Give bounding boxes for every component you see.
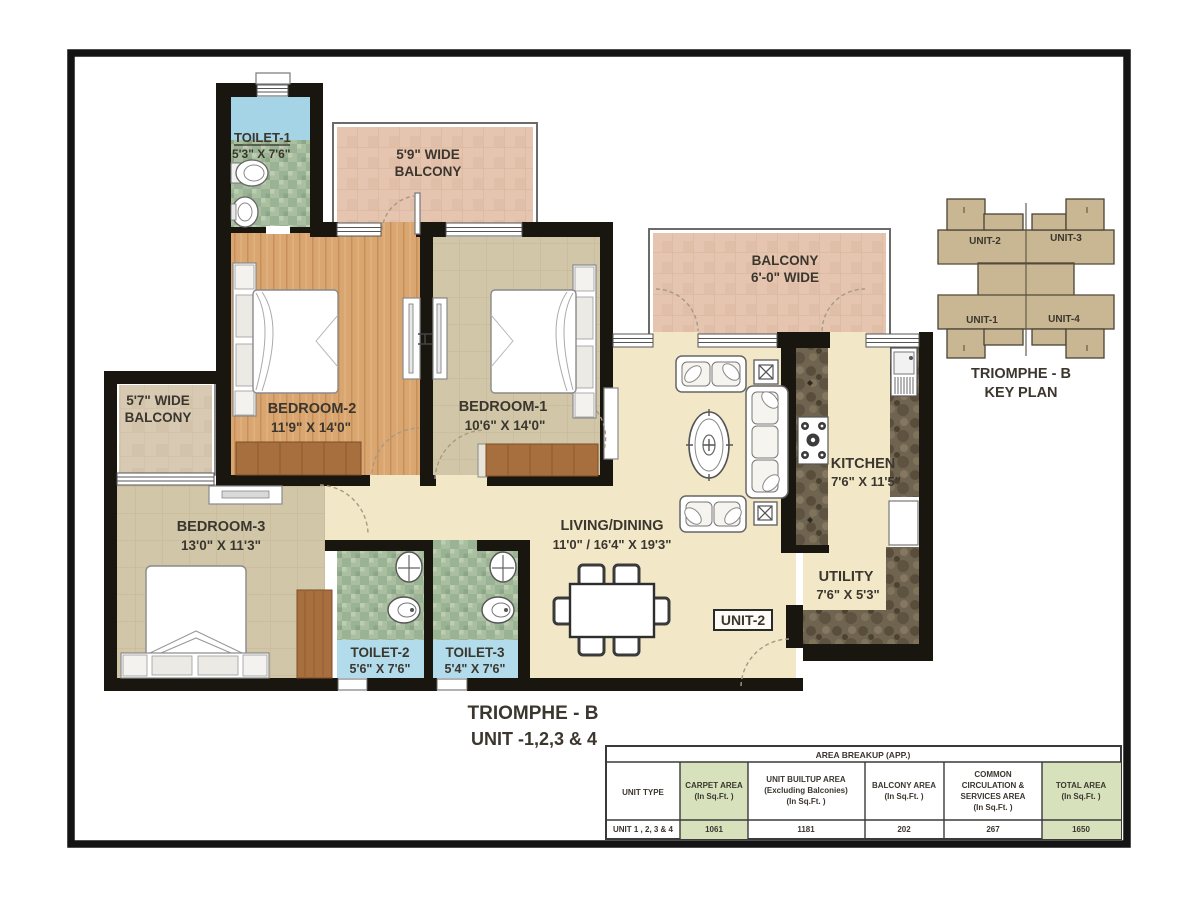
svg-text:UNIT-4: UNIT-4: [1048, 314, 1080, 325]
svg-text:UNIT 1 , 2, 3 & 4: UNIT 1 , 2, 3 & 4: [613, 825, 674, 834]
svg-text:(Excluding Balconies): (Excluding Balconies): [764, 786, 848, 795]
svg-text:5'3" X 7'6": 5'3" X 7'6": [232, 147, 290, 161]
svg-text:AREA BREAKUP (APP.): AREA BREAKUP (APP.): [816, 750, 911, 760]
svg-text:1650: 1650: [1072, 825, 1090, 834]
svg-text:TOILET-1: TOILET-1: [234, 130, 291, 145]
svg-text:UNIT BUILTUP AREA: UNIT BUILTUP AREA: [766, 775, 846, 784]
svg-text:5'4" X 7'6": 5'4" X 7'6": [445, 662, 506, 676]
svg-text:(In Sq.Ft. ): (In Sq.Ft. ): [1061, 792, 1100, 801]
svg-text:UNIT-2: UNIT-2: [969, 236, 1001, 247]
svg-text:UNIT-2: UNIT-2: [721, 612, 766, 628]
svg-text:1181: 1181: [797, 825, 815, 834]
svg-text:TOTAL AREA: TOTAL AREA: [1056, 781, 1107, 790]
svg-text:TRIOMPHE - B: TRIOMPHE - B: [468, 703, 599, 724]
svg-text:BALCONY: BALCONY: [395, 164, 462, 179]
svg-text:UNIT -1,2,3 & 4: UNIT -1,2,3 & 4: [471, 729, 597, 749]
svg-text:TOILET-3: TOILET-3: [445, 645, 505, 660]
svg-text:11'0" / 16'4" X 19'3": 11'0" / 16'4" X 19'3": [553, 537, 672, 552]
svg-text:(In Sq.Ft. ): (In Sq.Ft. ): [786, 797, 825, 806]
svg-text:267: 267: [986, 825, 1000, 834]
svg-text:KEY PLAN: KEY PLAN: [984, 385, 1057, 401]
svg-text:(In Sq.Ft. ): (In Sq.Ft. ): [973, 803, 1012, 812]
svg-text:6'-0" WIDE: 6'-0" WIDE: [751, 270, 819, 285]
svg-text:BALCONY: BALCONY: [125, 410, 192, 425]
svg-text:UNIT TYPE: UNIT TYPE: [622, 788, 664, 797]
svg-text:(In Sq.Ft. ): (In Sq.Ft. ): [694, 792, 733, 801]
svg-text:11'9" X 14'0": 11'9" X 14'0": [271, 420, 351, 435]
svg-text:UNIT-3: UNIT-3: [1050, 233, 1082, 244]
svg-text:BEDROOM-3: BEDROOM-3: [177, 519, 266, 535]
svg-text:BALCONY AREA: BALCONY AREA: [872, 781, 936, 790]
svg-text:BEDROOM-2: BEDROOM-2: [268, 401, 357, 417]
svg-text:5'7" WIDE: 5'7" WIDE: [126, 393, 190, 408]
svg-text:TRIOMPHE - B: TRIOMPHE - B: [971, 366, 1071, 382]
svg-text:1061: 1061: [705, 825, 723, 834]
svg-text:7'6" X 5'3": 7'6" X 5'3": [816, 587, 879, 602]
svg-text:5'9" WIDE: 5'9" WIDE: [396, 147, 460, 162]
svg-text:CARPET AREA: CARPET AREA: [685, 781, 743, 790]
svg-text:CIRCULATION &: CIRCULATION &: [962, 781, 1025, 790]
svg-text:KITCHEN: KITCHEN: [831, 456, 895, 472]
svg-text:TOILET-2: TOILET-2: [350, 645, 409, 660]
svg-text:5'6" X 7'6": 5'6" X 7'6": [350, 662, 411, 676]
svg-text:7'6" X 11'5": 7'6" X 11'5": [831, 474, 901, 489]
svg-text:COMMON: COMMON: [974, 770, 1012, 779]
svg-text:202: 202: [897, 825, 911, 834]
svg-text:13'0" X 11'3": 13'0" X 11'3": [181, 538, 261, 553]
svg-text:LIVING/DINING: LIVING/DINING: [560, 518, 663, 534]
svg-text:BEDROOM-1: BEDROOM-1: [459, 399, 548, 415]
svg-text:(In Sq.Ft. ): (In Sq.Ft. ): [884, 792, 923, 801]
svg-text:BALCONY: BALCONY: [752, 253, 819, 268]
svg-text:SERVICES AREA: SERVICES AREA: [961, 792, 1026, 801]
svg-text:UTILITY: UTILITY: [819, 569, 874, 585]
svg-text:UNIT-1: UNIT-1: [966, 315, 998, 326]
svg-text:10'6" X 14'0": 10'6" X 14'0": [465, 418, 546, 433]
